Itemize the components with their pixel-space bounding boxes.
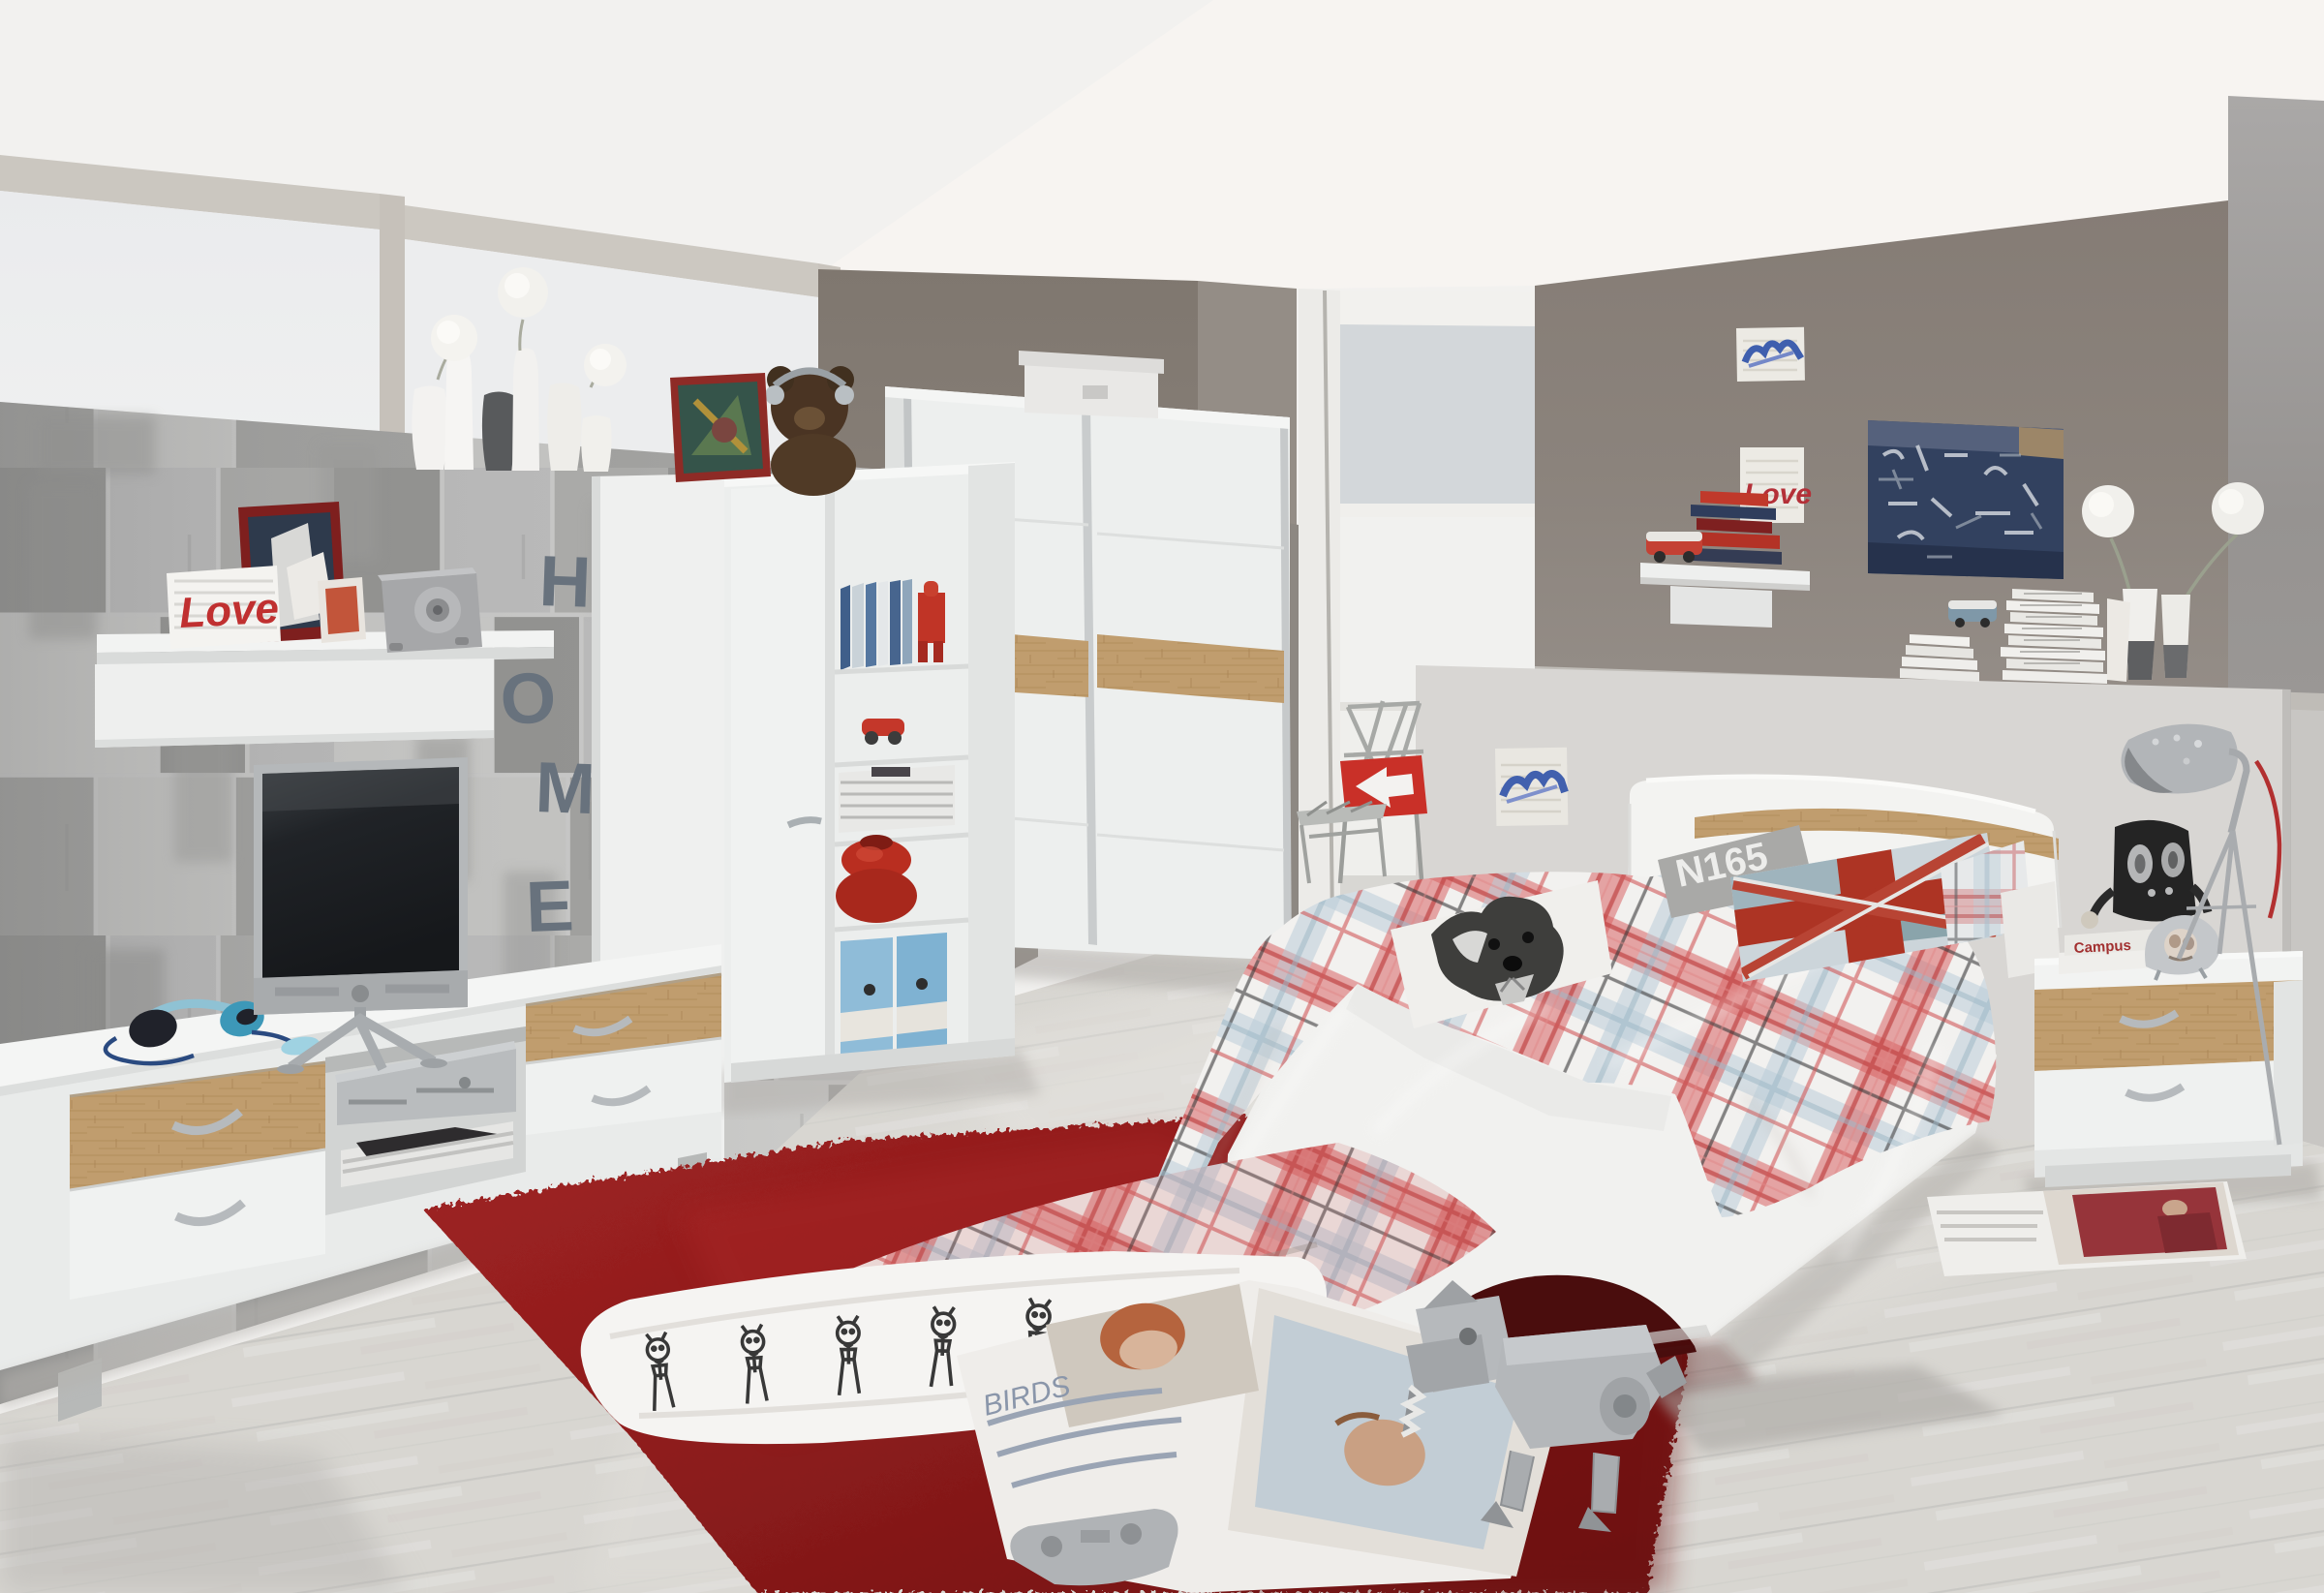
svg-text:H: H xyxy=(537,540,592,623)
svg-text:Campus: Campus xyxy=(2073,937,2131,957)
svg-text:O: O xyxy=(498,657,558,740)
svg-text:Love: Love xyxy=(178,585,280,637)
svg-text:E: E xyxy=(525,865,575,947)
svg-text:M: M xyxy=(534,747,596,829)
